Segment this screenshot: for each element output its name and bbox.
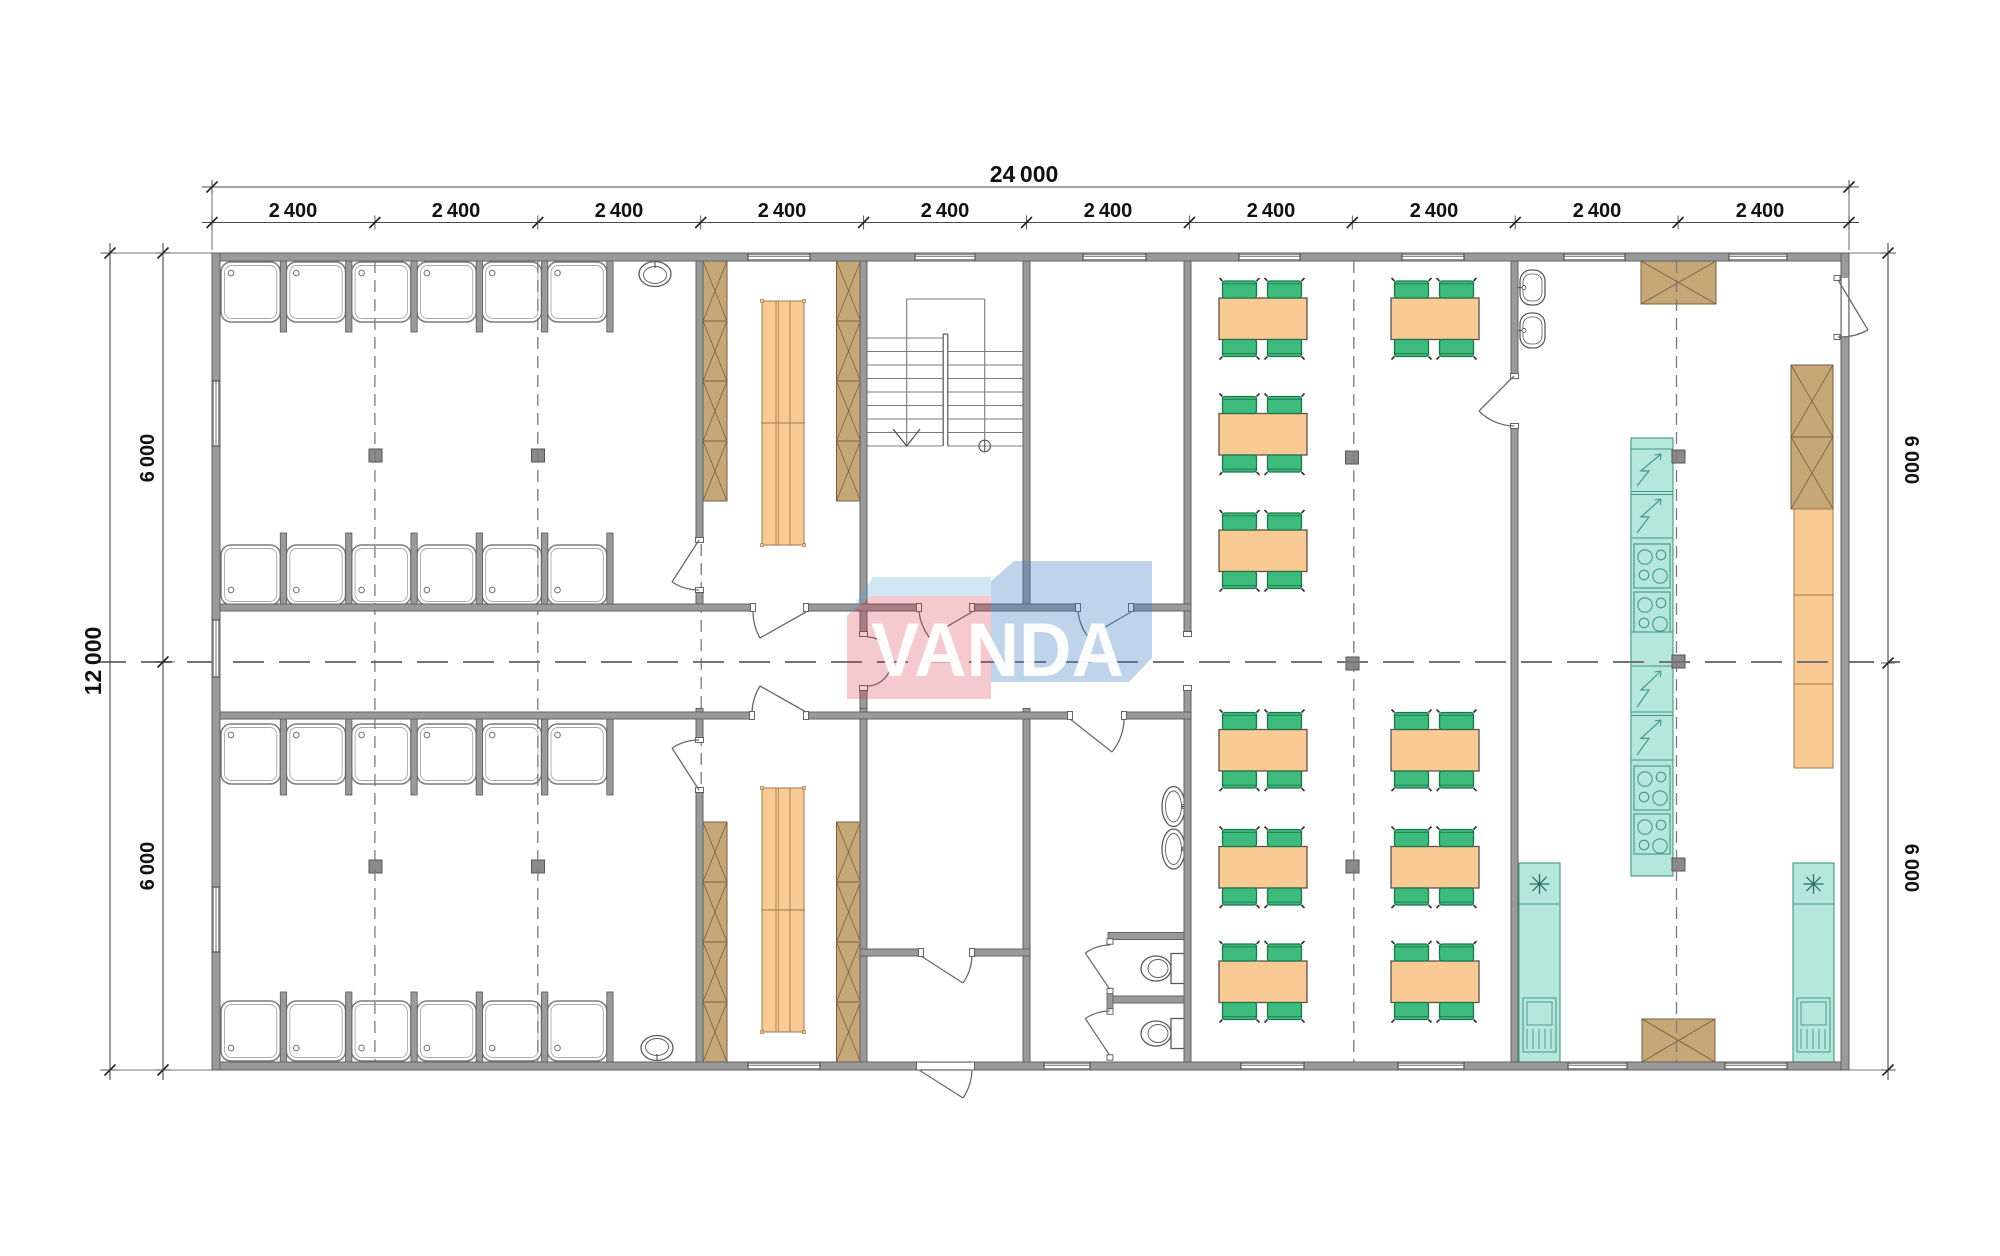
svg-text:2 400: 2 400 <box>1736 200 1785 222</box>
svg-text:6 000: 6 000 <box>137 842 159 891</box>
svg-text:2 400: 2 400 <box>269 200 318 222</box>
svg-text:6 000: 6 000 <box>137 434 159 483</box>
svg-text:2 400: 2 400 <box>1247 200 1296 222</box>
svg-text:6 000: 6 000 <box>1900 844 1922 893</box>
svg-text:2 400: 2 400 <box>1410 200 1459 222</box>
svg-text:2 400: 2 400 <box>432 200 481 222</box>
svg-text:2 400: 2 400 <box>921 200 970 222</box>
svg-text:2 400: 2 400 <box>595 200 644 222</box>
svg-text:2 400: 2 400 <box>1573 200 1622 222</box>
svg-text:6 000: 6 000 <box>1900 436 1922 485</box>
svg-text:2 400: 2 400 <box>1084 200 1133 222</box>
svg-text:2 400: 2 400 <box>758 200 807 222</box>
svg-text:24 000: 24 000 <box>990 161 1059 187</box>
svg-text:12 000: 12 000 <box>80 627 106 696</box>
svg-text:VANDA: VANDA <box>871 608 1124 693</box>
